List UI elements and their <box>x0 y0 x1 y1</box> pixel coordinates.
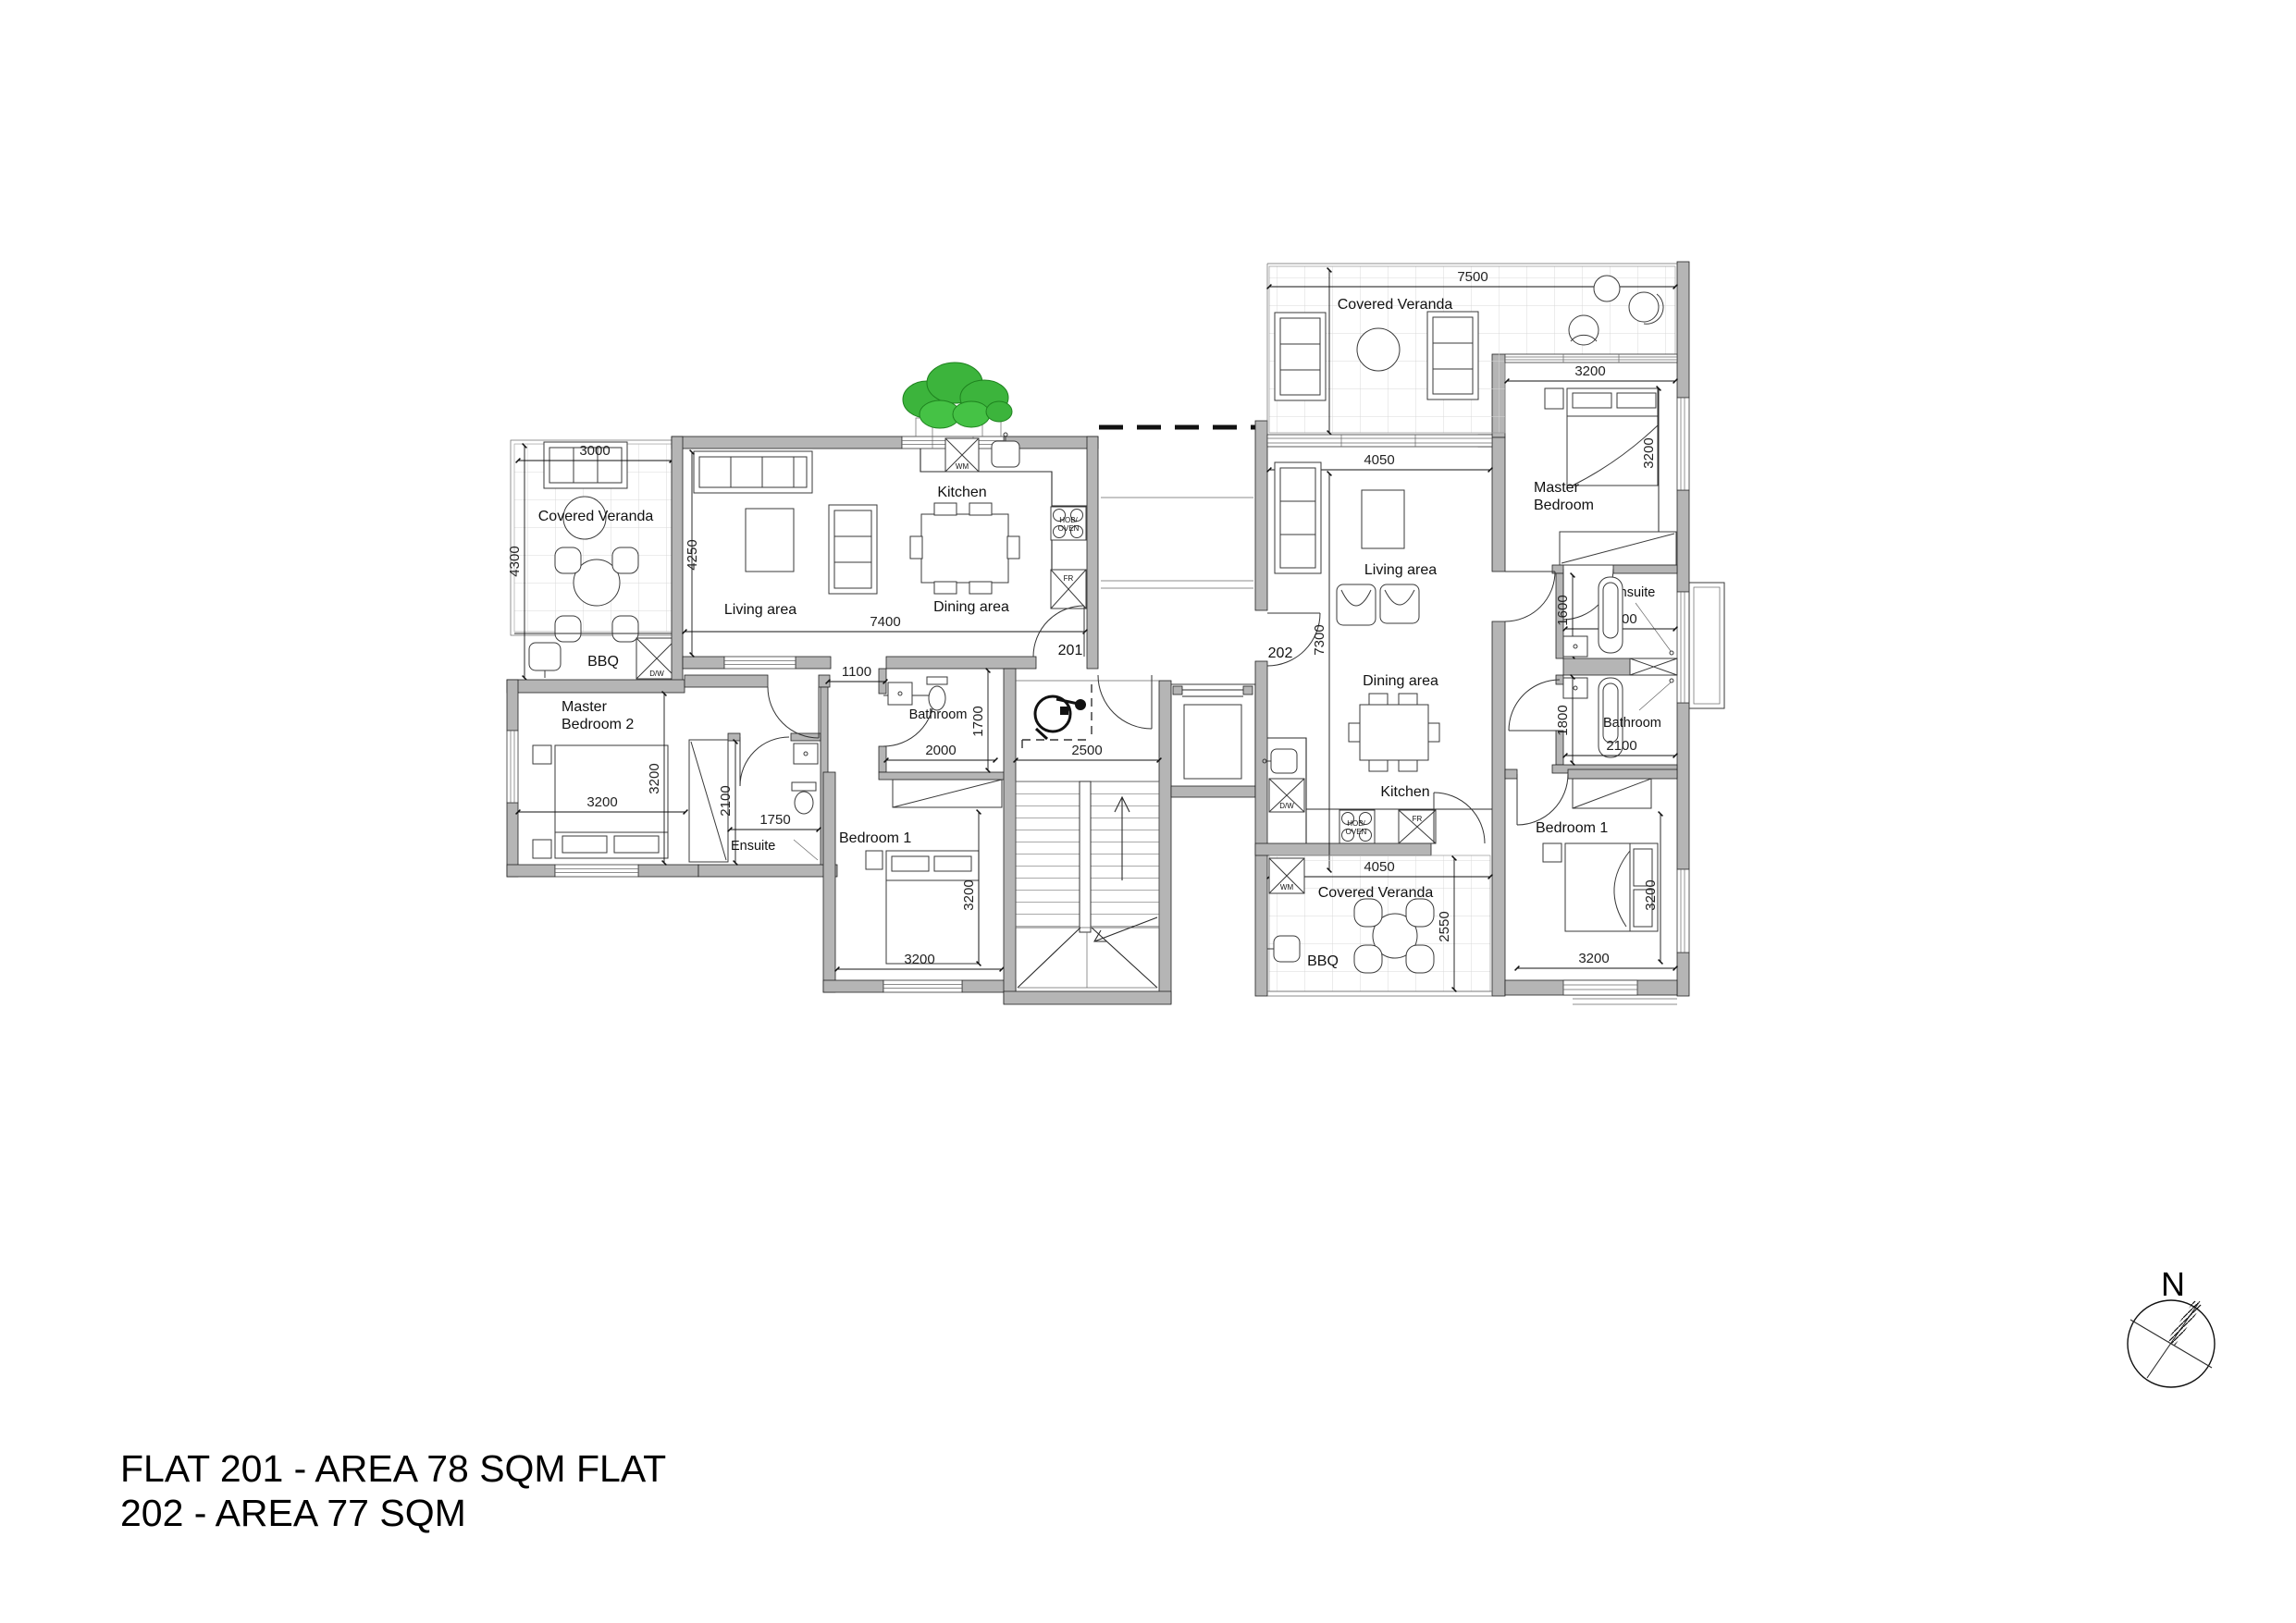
window <box>1267 435 1492 447</box>
sofa <box>1275 462 1321 573</box>
svg-text:7500: 7500 <box>1457 269 1487 285</box>
toilet <box>927 677 947 710</box>
svg-text:3200: 3200 <box>904 952 934 967</box>
wm-box: WM <box>945 438 979 472</box>
svg-text:1750: 1750 <box>759 812 790 828</box>
label-mb-2: Bedroom <box>1534 498 1594 513</box>
svg-text:WM: WM <box>1280 883 1294 891</box>
living-201: Living area WM HOB/ OVEN <box>685 433 1087 655</box>
duct-shaft <box>1630 658 1677 675</box>
sink <box>888 682 912 705</box>
sink <box>1563 678 1587 698</box>
label-mb2-1: Master <box>562 699 608 715</box>
svg-text:7300: 7300 <box>1312 624 1327 655</box>
elevator <box>1171 684 1255 797</box>
bedroom-1-202: Bedroom 1 3200 3200 <box>1517 774 1677 1004</box>
svg-text:4050: 4050 <box>1364 452 1394 468</box>
window <box>1677 592 1689 703</box>
ensuite-201: 1750 Ensuite <box>730 737 819 860</box>
hob-oven: HOB/ OVEN <box>1051 507 1086 540</box>
svg-text:3200: 3200 <box>1641 437 1657 468</box>
door-arc <box>1509 680 1560 731</box>
armchairs <box>1337 584 1419 625</box>
title-line-1: FLAT 201 - AREA 78 SQM FLAT <box>120 1447 666 1490</box>
hall-door <box>1505 572 1555 621</box>
toilet <box>792 782 816 814</box>
window <box>1677 398 1689 490</box>
svg-text:D/W: D/W <box>1279 802 1294 810</box>
label-bbq-201: BBQ <box>587 654 619 670</box>
wm-box: WM <box>1269 858 1304 893</box>
round-table <box>1357 328 1400 371</box>
bathtub <box>1599 577 1623 653</box>
door-201-label: 201 <box>1058 643 1083 658</box>
label-veranda-202-top: Covered Veranda <box>1338 297 1453 313</box>
label-veranda-202-bottom: Covered Veranda <box>1318 885 1434 901</box>
side-sofa <box>829 505 877 594</box>
sink <box>1563 636 1587 657</box>
coffee-table <box>1362 490 1404 548</box>
window <box>1677 869 1689 953</box>
bathroom-201: Bathroom 2000 1700 <box>883 670 995 770</box>
label-kitchen-202: Kitchen <box>1380 784 1429 800</box>
floor-plan-canvas: D/W Covered Veranda BBQ 3000 4300 <box>0 0 2296 1623</box>
label-living-201: Living area <box>724 602 796 618</box>
dw-label: D/W <box>649 670 664 678</box>
window <box>1563 980 1637 995</box>
flat-202: 7500 3150 Covered Veranda <box>1255 262 1724 1004</box>
svg-text:7400: 7400 <box>870 614 900 630</box>
svg-text:HOB/: HOB/ <box>1059 516 1078 524</box>
svg-text:OVEN: OVEN <box>1058 524 1080 533</box>
bed <box>1543 843 1658 931</box>
svg-text:3200: 3200 <box>1643 879 1659 910</box>
label-mb-1: Master <box>1534 480 1580 496</box>
closet <box>893 780 1002 807</box>
window <box>555 865 638 877</box>
svg-text:1700: 1700 <box>970 706 986 736</box>
veranda-201: D/W Covered Veranda BBQ 3000 4300 <box>507 440 683 679</box>
bed <box>1545 388 1658 486</box>
label-mb2-2: Bedroom 2 <box>562 717 634 732</box>
sink <box>1263 749 1297 773</box>
dim-3000-label: 3000 <box>579 443 610 459</box>
door-arc <box>1517 774 1568 825</box>
bedroom-1-201: Bedroom 1 3200 3200 <box>837 780 1002 969</box>
fridge-box: FR <box>1051 570 1086 609</box>
wheelchair-icon <box>1022 684 1092 751</box>
svg-text:2500: 2500 <box>1071 743 1102 758</box>
bbq-unit <box>529 643 561 678</box>
svg-text:3200: 3200 <box>647 763 662 793</box>
living-202: 4050 7300 Living area Dining area <box>1263 452 1492 870</box>
label-kitchen-201: Kitchen <box>937 485 986 500</box>
door-202-label: 202 <box>1268 646 1293 661</box>
svg-text:1100: 1100 <box>842 664 871 680</box>
svg-text:3200: 3200 <box>961 879 977 910</box>
svg-text:2000: 2000 <box>925 743 956 758</box>
floor-plan-page: D/W Covered Veranda BBQ 3000 4300 <box>0 0 2296 1623</box>
shaft-bay <box>1689 583 1724 708</box>
coffee-table <box>746 509 794 572</box>
svg-text:WM: WM <box>956 462 969 471</box>
window <box>724 657 796 669</box>
svg-text:FR: FR <box>1413 815 1423 823</box>
closet <box>1573 779 1651 808</box>
label-living-202: Living area <box>1364 562 1437 578</box>
staircase <box>1016 781 1159 988</box>
master-bedroom-2: Master Bedroom 2 3200 3200 2100 1750 Ens… <box>518 687 819 863</box>
label-dining-201: Dining area <box>933 599 1009 615</box>
label-ensuite-201: Ensuite <box>731 839 775 854</box>
outdoor-sofa <box>1427 312 1478 400</box>
svg-text:2100: 2100 <box>718 785 734 816</box>
wardrobe <box>1560 532 1676 565</box>
label-bedroom1-202: Bedroom 1 <box>1536 820 1608 836</box>
title-line-2: 202 - AREA 77 SQM <box>120 1492 466 1534</box>
outdoor-sofa <box>1275 313 1326 400</box>
compass-needle <box>2171 1303 2198 1343</box>
master-bedroom-202: 3200 3200 Master Bedroom <box>1505 363 1676 621</box>
svg-text:4250: 4250 <box>685 539 700 570</box>
label-veranda-201: Covered Veranda <box>538 509 654 524</box>
svg-text:2100: 2100 <box>1606 738 1636 754</box>
label-bbq-202: BBQ <box>1307 953 1339 969</box>
window <box>1505 354 1677 363</box>
dining-set <box>1349 694 1439 771</box>
label-bedroom1-201: Bedroom 1 <box>839 830 911 846</box>
svg-text:3200: 3200 <box>1574 363 1605 379</box>
window <box>883 980 962 992</box>
leader <box>794 840 818 860</box>
label-dining-202: Dining area <box>1363 673 1438 689</box>
svg-text:3200: 3200 <box>586 794 617 810</box>
label-bathroom-202: Bathroom <box>1603 716 1661 731</box>
fridge-box: FR <box>1399 810 1436 843</box>
tree <box>903 363 1012 436</box>
veranda-202-bottom: 4050 2550 Covered Veranda WM BBQ <box>1267 855 1492 996</box>
svg-text:3200: 3200 <box>1578 951 1609 966</box>
svg-text:1800: 1800 <box>1555 705 1571 735</box>
dining-set <box>910 503 1019 594</box>
sofa <box>694 451 812 493</box>
dim-4300-label: 4300 <box>507 546 523 576</box>
svg-text:2550: 2550 <box>1437 911 1452 941</box>
hob-oven: HOB/ OVEN <box>1339 810 1375 843</box>
title-block: FLAT 201 - AREA 78 SQM FLAT 202 - AREA 7… <box>120 1447 666 1534</box>
kitchen-veranda-door <box>1434 793 1485 843</box>
landing-door <box>1098 675 1152 729</box>
svg-text:4050: 4050 <box>1364 859 1394 875</box>
sink <box>794 744 818 764</box>
svg-text:FR: FR <box>1064 574 1074 583</box>
dw-box: D/W <box>1269 779 1304 812</box>
bathroom-202: Bathroom 1800 2100 <box>1509 677 1675 763</box>
label-bathroom-201: Bathroom <box>909 707 968 722</box>
core: 2500 <box>1004 427 1255 1004</box>
svg-text:1600: 1600 <box>1555 595 1571 625</box>
north-compass: N <box>2128 1265 2215 1387</box>
window <box>507 731 518 803</box>
svg-text:HOB/: HOB/ <box>1347 819 1365 828</box>
door-arc <box>768 687 819 738</box>
door-201: 201 <box>1033 606 1084 658</box>
svg-text:OVEN: OVEN <box>1346 828 1367 836</box>
leader <box>1639 682 1671 710</box>
north-label: N <box>2161 1265 2185 1303</box>
dw-box-veranda: D/W <box>636 638 677 679</box>
leader <box>1636 603 1671 651</box>
